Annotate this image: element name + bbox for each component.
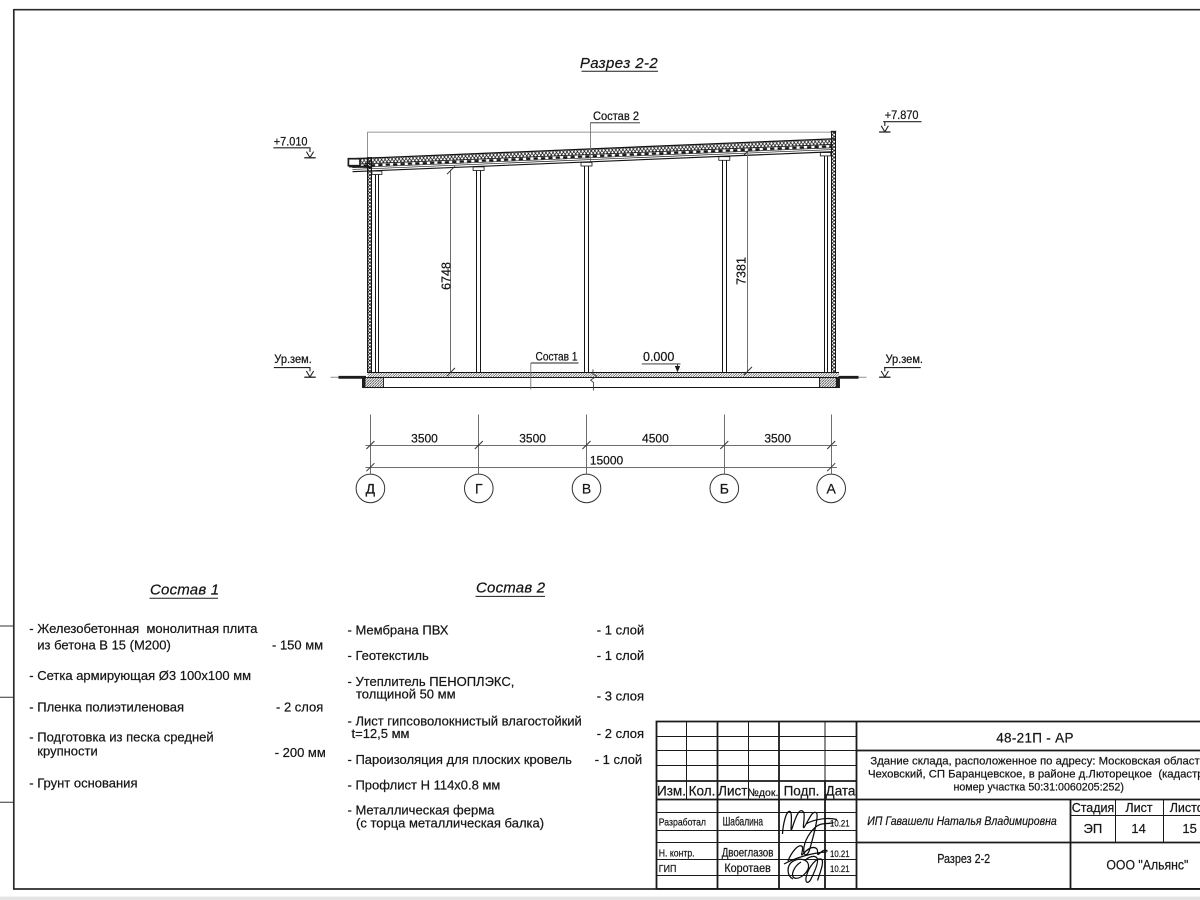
svg-text:(с торца металлическая балка): (с торца металлическая балка) <box>356 815 544 830</box>
svg-text:Разрез 2-2: Разрез 2-2 <box>580 55 659 72</box>
svg-text:Изм.: Изм. <box>657 784 686 799</box>
svg-text:Г: Г <box>475 480 483 496</box>
svg-text:Ур.зем.: Ур.зем. <box>274 354 312 366</box>
svg-text:10.21: 10.21 <box>830 849 850 860</box>
svg-text:- Грунт основания: - Грунт основания <box>29 775 137 790</box>
svg-text:В: В <box>582 480 591 496</box>
svg-text:Дата: Дата <box>826 784 856 799</box>
svg-text:- Профлист Н 114х0.8 мм: - Профлист Н 114х0.8 мм <box>348 777 501 792</box>
svg-text:- Подготовка из песка средней: - Подготовка из песка средней <box>29 730 213 745</box>
svg-text:10.21: 10.21 <box>830 819 850 830</box>
svg-text:10.21: 10.21 <box>830 864 850 875</box>
svg-text:Н. контр.: Н. контр. <box>659 847 695 859</box>
svg-text:Коротаев: Коротаев <box>724 863 770 875</box>
svg-text:Здание склада, расположенное п: Здание склада, расположенное по адресу: … <box>870 755 1200 767</box>
svg-text:номер участка 50:31:0060205:25: номер участка 50:31:0060205:252) <box>953 781 1124 793</box>
svg-text:t=12,5 мм: t=12,5 мм <box>352 726 410 741</box>
svg-text:- 2 слоя: - 2 слоя <box>276 699 323 714</box>
svg-text:- 200 мм: - 200 мм <box>275 745 326 760</box>
svg-text:Состав 2: Состав 2 <box>593 111 639 123</box>
svg-text:- Мембрана ПВХ: - Мембрана ПВХ <box>348 623 449 638</box>
svg-text:из бетона В 15 (М200): из бетона В 15 (М200) <box>37 638 171 653</box>
svg-text:3500: 3500 <box>764 431 791 445</box>
svg-text:Лист: Лист <box>1125 801 1152 815</box>
svg-text:- 1 слой: - 1 слой <box>597 648 645 663</box>
svg-text:14: 14 <box>1131 821 1145 836</box>
svg-text:3500: 3500 <box>519 431 546 445</box>
svg-text:Двоеглазов: Двоеглазов <box>722 847 774 859</box>
svg-text:6748: 6748 <box>439 262 453 290</box>
svg-text:Лист: Лист <box>718 784 747 799</box>
svg-text:ООО "Альянс": ООО "Альянс" <box>1106 857 1188 872</box>
svg-text:15000: 15000 <box>590 453 624 467</box>
svg-text:толщиной 50 мм: толщиной 50 мм <box>356 687 456 702</box>
svg-text:Стадия: Стадия <box>1072 801 1115 815</box>
svg-text:Листов: Листов <box>1170 801 1200 815</box>
svg-text:Разработал: Разработал <box>659 817 706 829</box>
svg-text:- 150 мм: - 150 мм <box>272 638 323 653</box>
svg-text:Ур.зем.: Ур.зем. <box>886 354 924 366</box>
svg-text:4500: 4500 <box>642 431 669 445</box>
svg-text:- 1 слой: - 1 слой <box>595 752 643 767</box>
svg-text:+7.010: +7.010 <box>274 136 308 148</box>
svg-text:№док.: №док. <box>748 787 779 799</box>
svg-text:48-21П - АР: 48-21П - АР <box>996 731 1074 746</box>
svg-text:ГИП: ГИП <box>659 863 677 875</box>
svg-text:Состав 1: Состав 1 <box>150 582 219 599</box>
svg-text:ИП Гавашели Наталья Владимиров: ИП Гавашели Наталья Владимировна <box>867 816 1057 828</box>
svg-text:крупности: крупности <box>37 744 97 759</box>
svg-text:Состав 1: Состав 1 <box>536 351 578 363</box>
svg-text:3500: 3500 <box>411 431 438 445</box>
svg-text:- 1 слой: - 1 слой <box>597 623 645 638</box>
svg-text:Чеховский, СП Баранцевское, в: Чеховский, СП Баранцевское, в районе д.Л… <box>868 768 1200 780</box>
svg-text:- Сетка армирующая Ø3 100х100: - Сетка армирующая Ø3 100х100 мм <box>29 668 251 683</box>
svg-text:- Геотекстиль: - Геотекстиль <box>348 648 429 663</box>
svg-text:- Пленка полиэтиленовая: - Пленка полиэтиленовая <box>29 699 184 714</box>
svg-text:А: А <box>827 480 837 496</box>
svg-text:15: 15 <box>1182 821 1196 836</box>
svg-text:Д: Д <box>366 480 376 496</box>
svg-text:Состав 2: Состав 2 <box>476 580 546 597</box>
svg-text:- 3 слоя: - 3 слоя <box>597 689 644 704</box>
svg-text:- 2 слоя: - 2 слоя <box>597 726 644 741</box>
svg-text:ЭП: ЭП <box>1084 821 1103 836</box>
svg-text:Разрез 2-2: Разрез 2-2 <box>937 852 990 866</box>
svg-text:+7.870: +7.870 <box>885 110 919 122</box>
svg-text:Подп.: Подп. <box>784 784 820 799</box>
svg-text:- Пароизоляция для плоских кро: - Пароизоляция для плоских кровель <box>348 752 573 767</box>
svg-text:0.000: 0.000 <box>643 350 674 364</box>
svg-text:Шабалина: Шабалина <box>723 817 764 829</box>
svg-text:- Железобетонная монолитная п: - Железобетонная монолитная плита <box>29 621 258 636</box>
svg-text:Кол.: Кол. <box>689 784 716 799</box>
svg-text:7381: 7381 <box>734 257 748 285</box>
svg-text:Б: Б <box>720 480 729 496</box>
